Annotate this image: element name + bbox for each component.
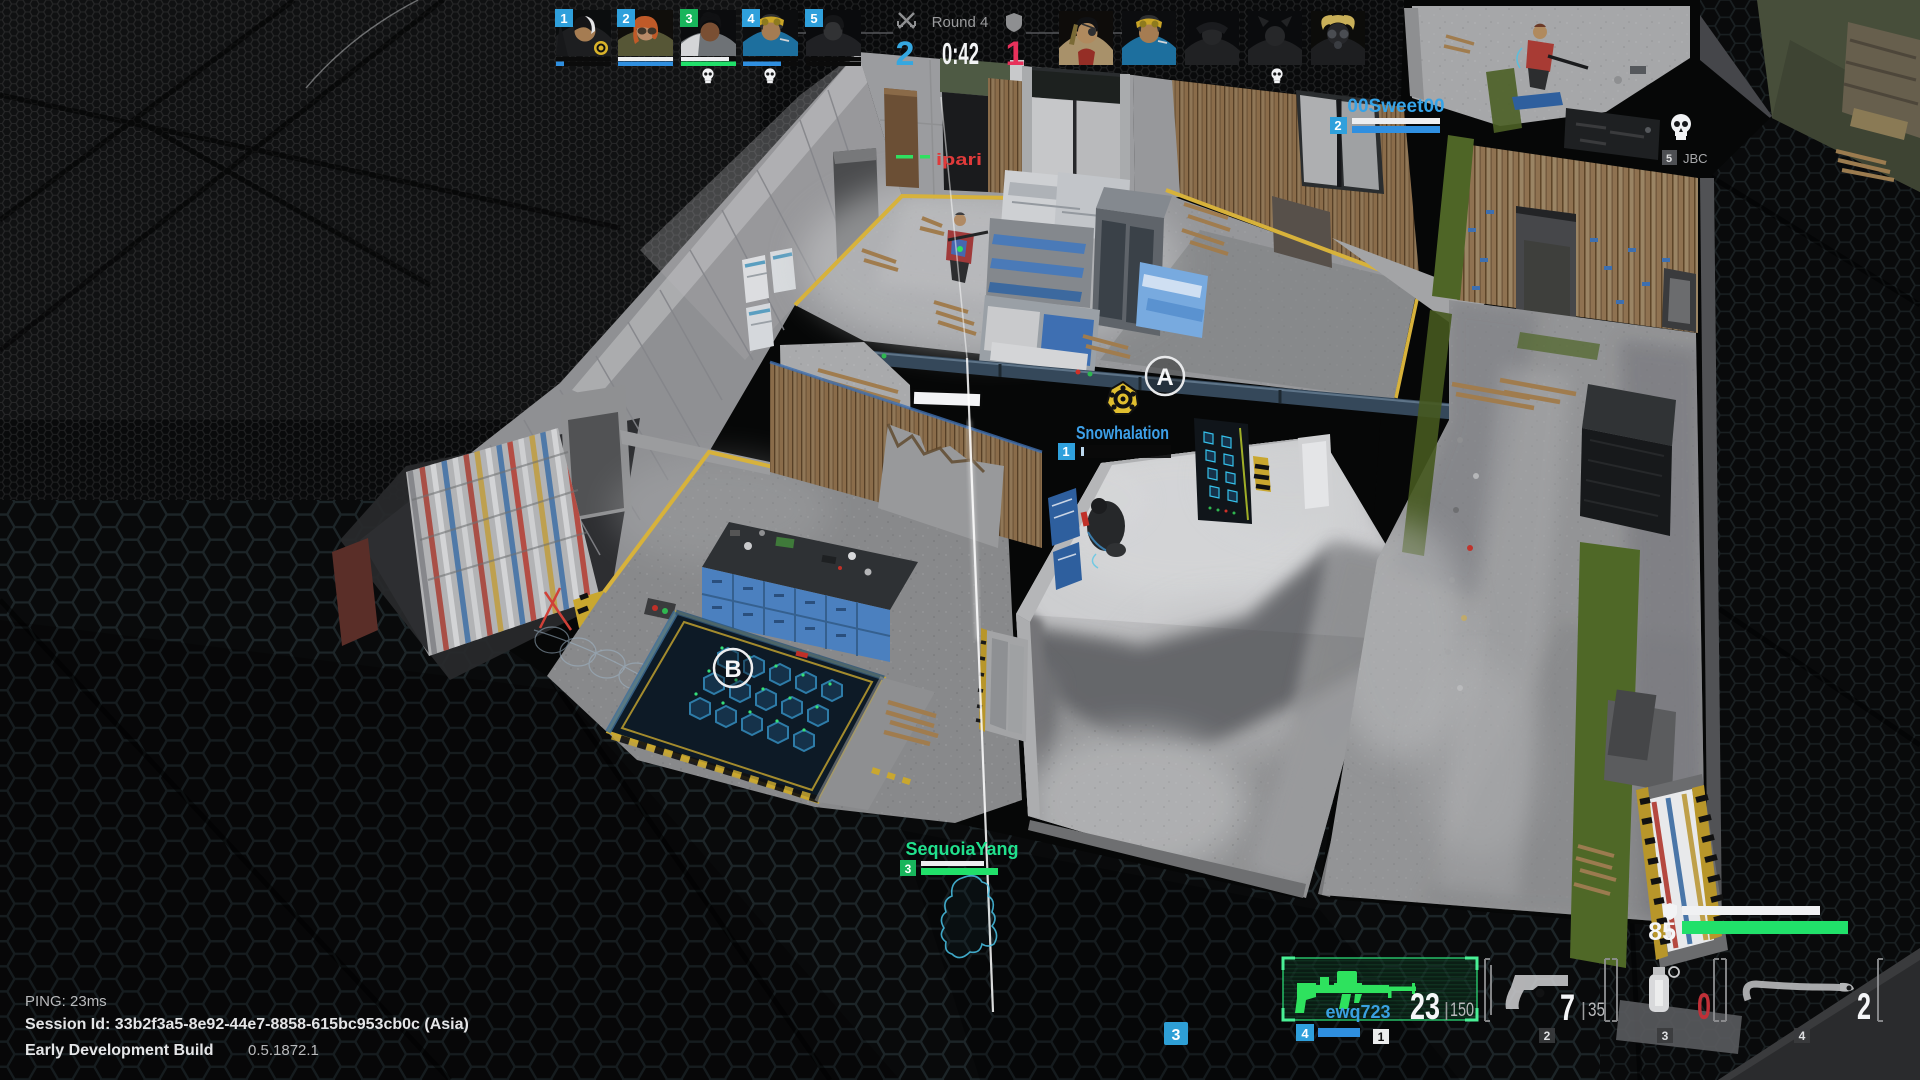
svg-text:5: 5 — [1666, 153, 1672, 165]
svg-text:4: 4 — [1301, 1026, 1309, 1041]
svg-text:2: 2 — [1857, 986, 1871, 1027]
svg-text:35: 35 — [1588, 1000, 1605, 1021]
svg-text:2: 2 — [622, 11, 629, 26]
svg-text:ipari: ipari — [936, 150, 982, 169]
svg-text:3: 3 — [1662, 1029, 1669, 1043]
svg-text:4: 4 — [1799, 1029, 1806, 1043]
svg-text:4: 4 — [747, 11, 755, 26]
svg-text:7: 7 — [1560, 987, 1575, 1028]
svg-text:Snowhalation: Snowhalation — [1076, 423, 1169, 443]
svg-text:JBC: JBC — [1683, 151, 1708, 166]
svg-text:PING: 23ms: PING: 23ms — [25, 993, 107, 1010]
svg-text:0:42: 0:42 — [942, 36, 979, 71]
svg-text:00Sweet00: 00Sweet00 — [1347, 96, 1444, 117]
svg-text:|: | — [1581, 1000, 1586, 1021]
svg-text:Round 4: Round 4 — [932, 14, 989, 31]
svg-text:3: 3 — [905, 862, 912, 876]
svg-text:Session Id: 33b2f3a5-8e92-44e7: Session Id: 33b2f3a5-8e92-44e7-8858-615b… — [25, 1016, 469, 1033]
svg-text:2: 2 — [896, 35, 915, 73]
svg-text:23: 23 — [1410, 986, 1440, 1027]
svg-text:SequoiaYang: SequoiaYang — [905, 839, 1018, 859]
svg-text:5: 5 — [810, 11, 817, 26]
svg-text:1: 1 — [560, 11, 567, 26]
svg-text:3: 3 — [685, 11, 692, 26]
svg-text:Early Development Build: Early Development Build — [25, 1042, 214, 1059]
svg-text:0: 0 — [1697, 986, 1711, 1027]
svg-text:1: 1 — [1378, 1030, 1385, 1044]
svg-text:150: 150 — [1450, 1000, 1474, 1021]
svg-text:3: 3 — [1172, 1027, 1181, 1044]
svg-text:0.5.1872.1: 0.5.1872.1 — [248, 1042, 319, 1059]
svg-text:A: A — [1156, 364, 1173, 391]
svg-text:|: | — [1444, 1000, 1449, 1021]
svg-text:2: 2 — [1334, 118, 1341, 133]
svg-text:ewq723: ewq723 — [1325, 1002, 1390, 1022]
svg-text:B: B — [724, 656, 741, 683]
svg-text:1: 1 — [1006, 35, 1025, 73]
svg-text:1: 1 — [1062, 444, 1069, 459]
svg-text:2: 2 — [1544, 1029, 1551, 1043]
svg-text:85: 85 — [1648, 918, 1676, 946]
